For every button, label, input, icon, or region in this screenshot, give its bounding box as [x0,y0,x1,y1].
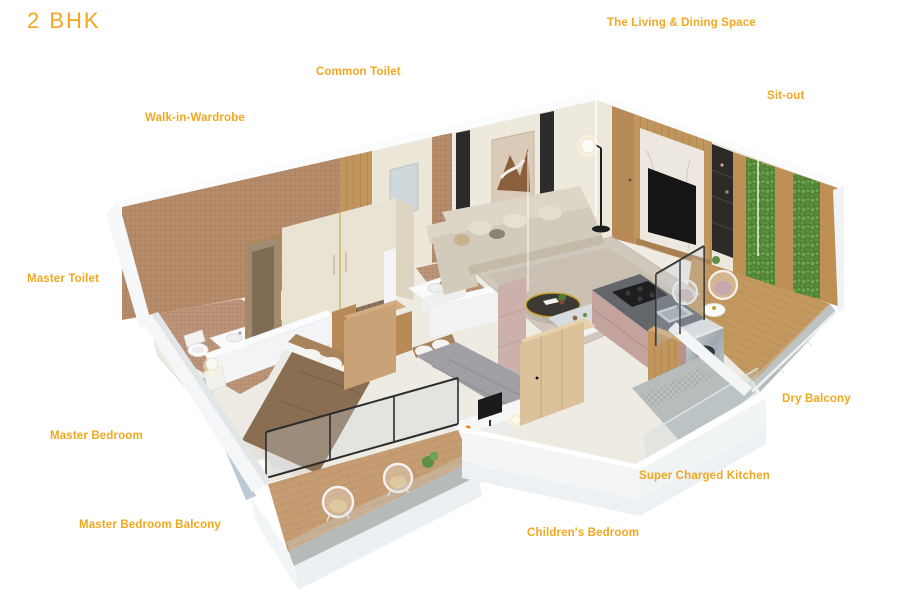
label-sit-out: Sit-out [767,90,804,103]
label-super-charged-kitchen: Super Charged Kitchen [639,470,770,483]
floorplan-stage: 2 BHK The Living & Dining Space Common T… [0,0,920,613]
label-living-dining: The Living & Dining Space [607,17,756,30]
shelf-unit [712,144,733,258]
label-walk-in-wardrobe: Walk-in-Wardrobe [145,112,245,125]
label-common-toilet: Common Toilet [316,66,401,79]
label-master-bedroom-balcony: Master Bedroom Balcony [79,519,221,532]
label-childrens-bedroom: Children's Bedroom [527,527,639,540]
label-master-toilet: Master Toilet [27,273,99,286]
rattan-chair [709,271,737,299]
label-dry-balcony: Dry Balcony [782,393,851,406]
label-master-bedroom: Master Bedroom [50,430,143,443]
entrance-door [612,106,634,244]
page-title: 2 BHK [27,10,101,32]
